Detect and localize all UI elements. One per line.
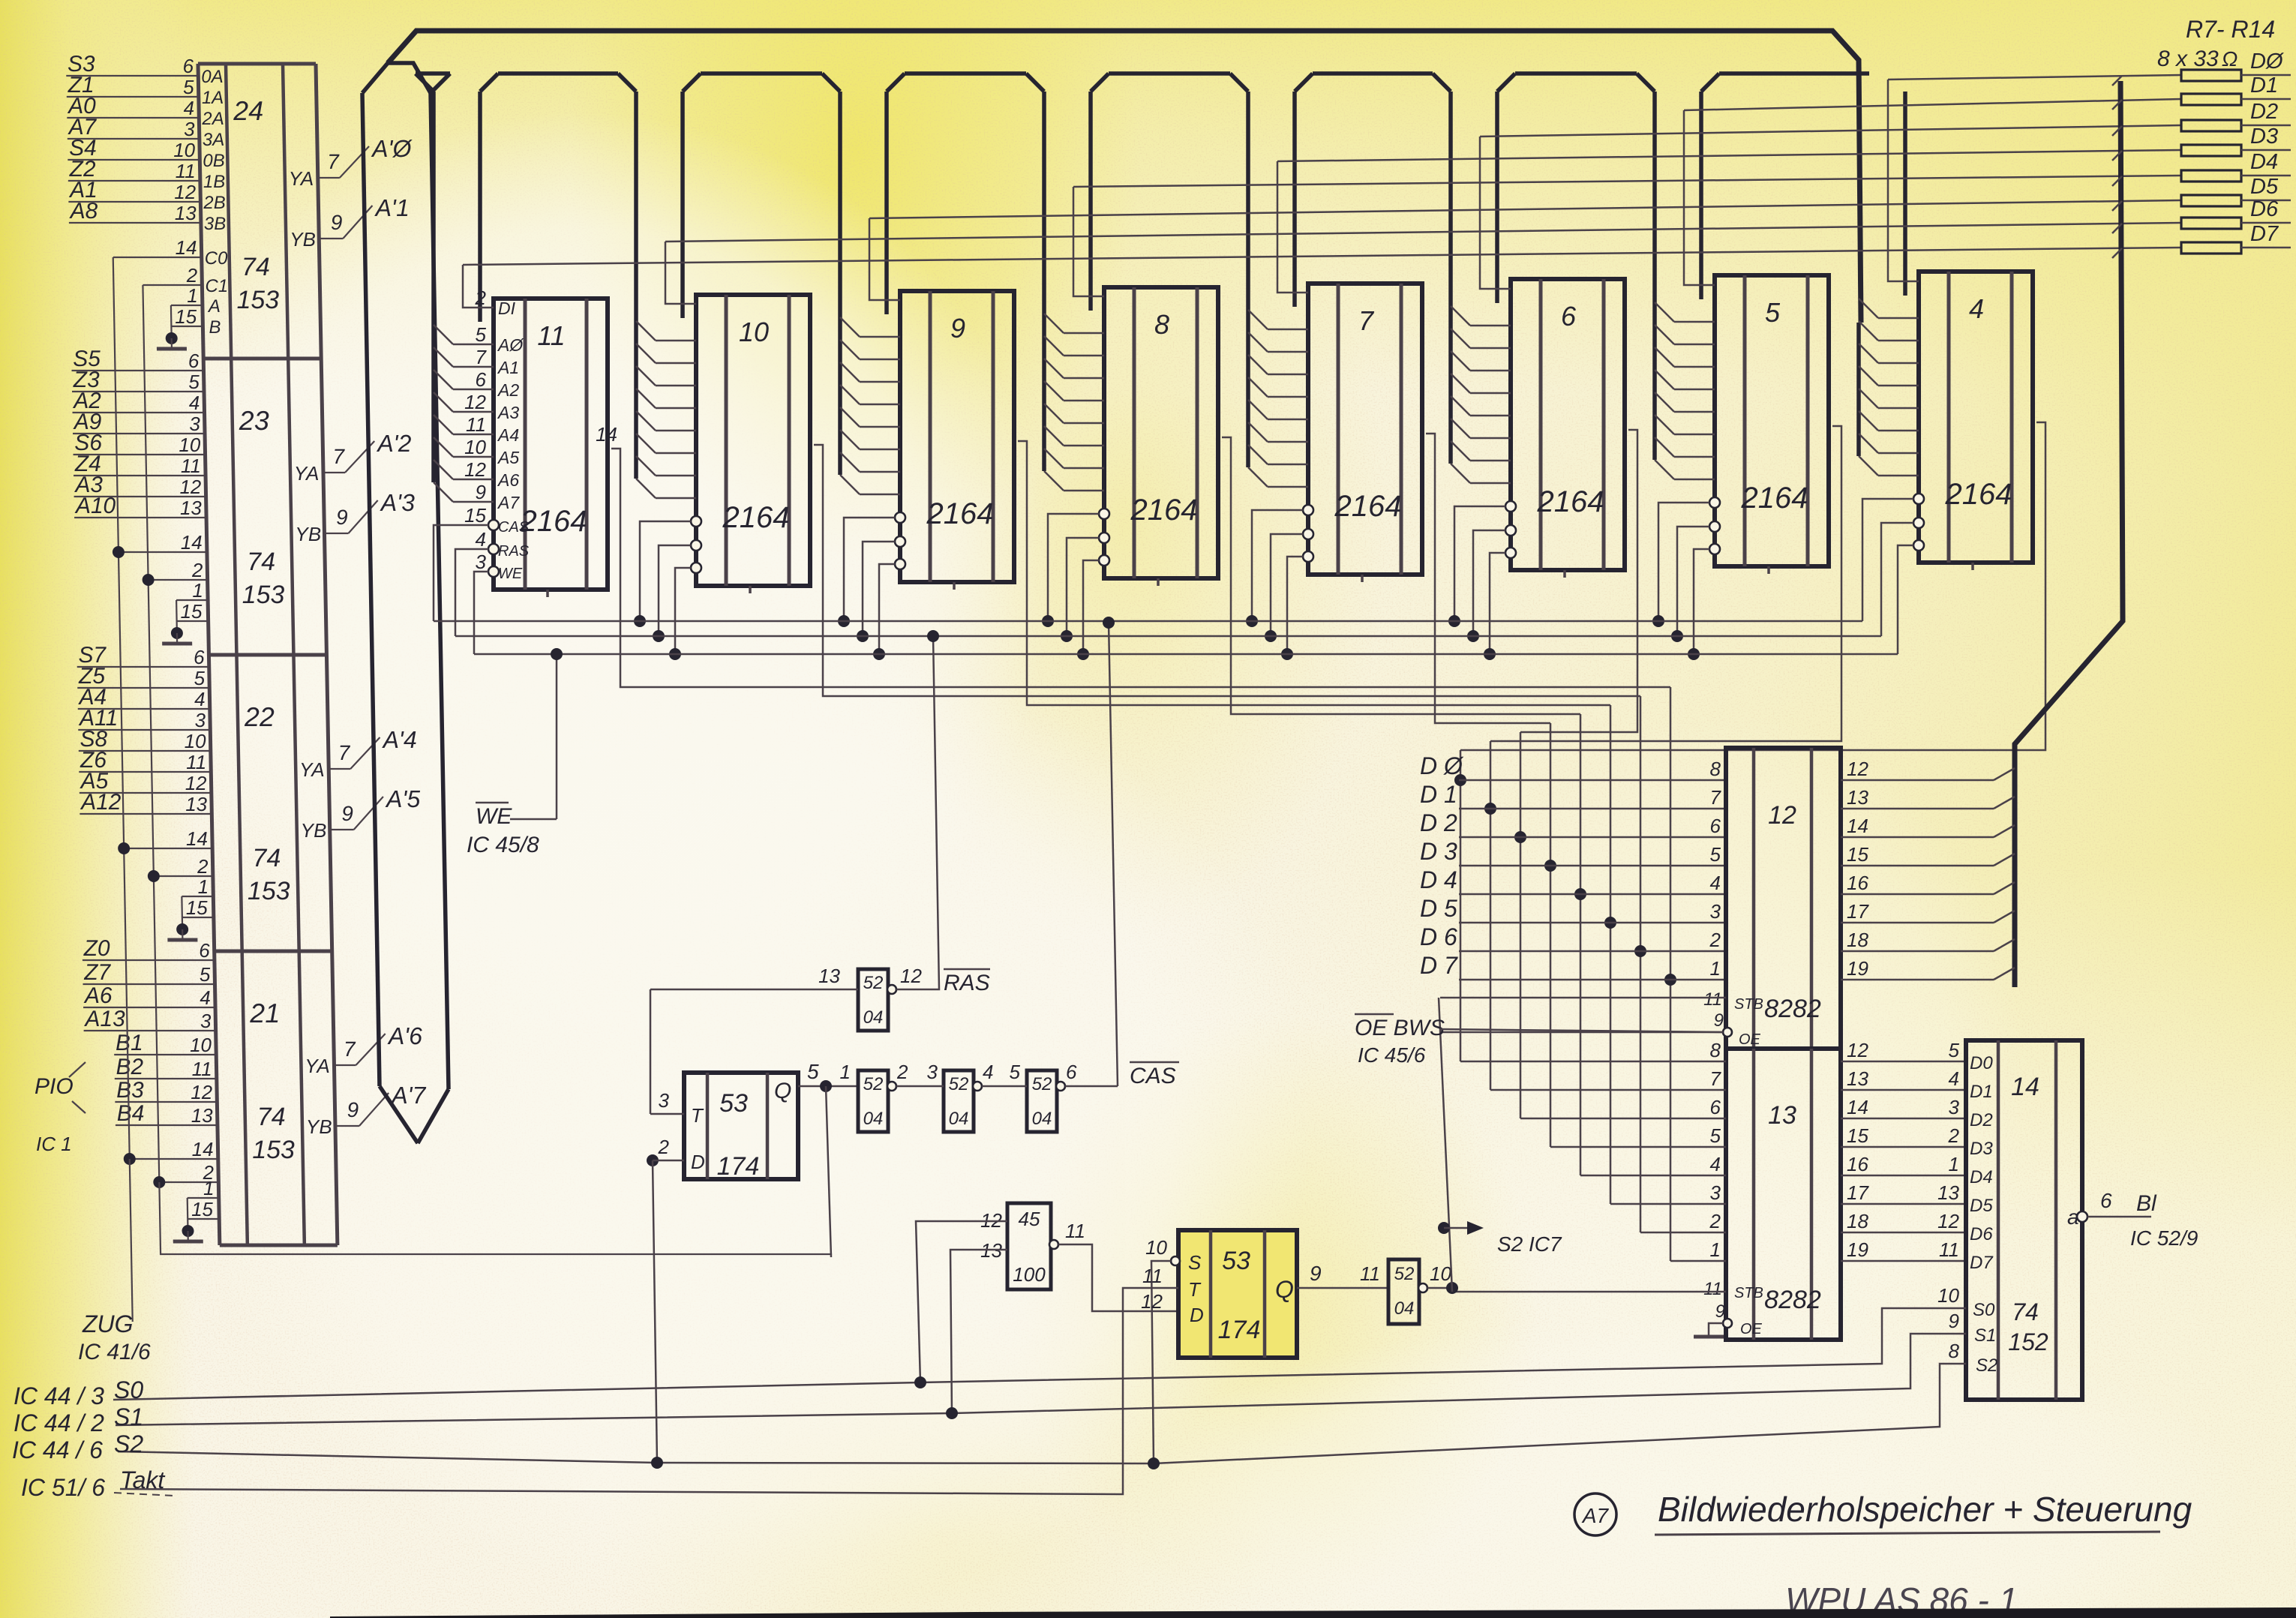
svg-text:6: 6 <box>1066 1061 1077 1083</box>
svg-text:13: 13 <box>1768 1101 1796 1130</box>
svg-text:11: 11 <box>181 455 202 477</box>
svg-text:12: 12 <box>1847 758 1868 780</box>
svg-text:12: 12 <box>464 458 486 481</box>
svg-text:4: 4 <box>983 1061 993 1083</box>
svg-text:12: 12 <box>1141 1290 1163 1313</box>
svg-text:14: 14 <box>191 1138 213 1160</box>
svg-text:5: 5 <box>1765 297 1781 328</box>
svg-text:153: 153 <box>248 877 291 905</box>
svg-text:153: 153 <box>242 581 285 609</box>
svg-text:2: 2 <box>185 264 198 287</box>
svg-text:13: 13 <box>818 965 840 987</box>
svg-text:9: 9 <box>950 313 965 344</box>
svg-text:74: 74 <box>2012 1298 2039 1325</box>
svg-text:STB: STB <box>1734 1285 1763 1301</box>
svg-text:6: 6 <box>182 55 194 77</box>
svg-text:A: A <box>207 296 221 317</box>
svg-text:1: 1 <box>1710 1238 1721 1261</box>
svg-text:2164: 2164 <box>1945 478 2012 511</box>
svg-text:53: 53 <box>1222 1247 1250 1275</box>
svg-text:11: 11 <box>1065 1220 1085 1242</box>
svg-text:4: 4 <box>1949 1067 1959 1090</box>
svg-text:4: 4 <box>183 97 194 119</box>
svg-text:12: 12 <box>1768 801 1796 830</box>
svg-text:6: 6 <box>1710 815 1721 837</box>
svg-text:Z7: Z7 <box>83 960 112 985</box>
svg-text:16: 16 <box>1847 1153 1868 1175</box>
svg-text:S0: S0 <box>114 1376 143 1403</box>
svg-text:15: 15 <box>180 600 203 623</box>
svg-text:7: 7 <box>332 445 346 468</box>
svg-text:11: 11 <box>175 160 196 182</box>
svg-text:04: 04 <box>949 1109 969 1129</box>
svg-text:D5: D5 <box>2250 175 2279 199</box>
svg-text:11: 11 <box>1703 989 1722 1010</box>
svg-text:7: 7 <box>327 150 341 173</box>
svg-text:1: 1 <box>187 284 198 307</box>
svg-text:153: 153 <box>236 286 280 314</box>
svg-text:52: 52 <box>949 1074 969 1094</box>
svg-text:D4: D4 <box>1970 1167 1993 1187</box>
svg-text:1: 1 <box>203 1177 215 1199</box>
svg-text:15: 15 <box>185 896 208 919</box>
svg-text:IC 52/9: IC 52/9 <box>2130 1226 2198 1250</box>
svg-text:10: 10 <box>173 139 196 161</box>
svg-text:B1: B1 <box>116 1031 143 1055</box>
svg-text:24: 24 <box>233 95 264 126</box>
svg-text:10: 10 <box>184 730 206 752</box>
svg-text:IC 1: IC 1 <box>36 1133 72 1155</box>
svg-text:S2 IC7: S2 IC7 <box>1497 1232 1562 1256</box>
svg-text:3B: 3B <box>204 214 227 234</box>
svg-text:2164: 2164 <box>1537 485 1604 518</box>
svg-text:Bl: Bl <box>2136 1191 2157 1216</box>
svg-text:A1: A1 <box>497 358 519 377</box>
svg-text:B4: B4 <box>116 1101 144 1126</box>
svg-text:A10: A10 <box>74 494 116 518</box>
svg-text:4: 4 <box>189 392 200 414</box>
svg-text:2164: 2164 <box>926 497 994 530</box>
svg-text:04: 04 <box>1032 1109 1052 1129</box>
svg-text:74: 74 <box>242 253 271 281</box>
svg-text:23: 23 <box>238 405 269 436</box>
svg-text:2164: 2164 <box>722 501 790 534</box>
svg-text:YA: YA <box>294 462 320 485</box>
svg-text:8282: 8282 <box>1764 995 1821 1023</box>
svg-text:A'Ø: A'Ø <box>371 135 413 162</box>
svg-text:11: 11 <box>537 320 565 351</box>
svg-text:13: 13 <box>185 793 208 815</box>
svg-text:52: 52 <box>1032 1074 1052 1094</box>
svg-text:D0: D0 <box>1970 1053 1993 1073</box>
svg-text:4: 4 <box>1710 1153 1721 1175</box>
svg-text:2: 2 <box>896 1061 908 1083</box>
svg-text:6: 6 <box>2100 1189 2112 1212</box>
svg-text:2164: 2164 <box>1334 490 1402 523</box>
svg-text:7: 7 <box>1710 786 1722 809</box>
svg-text:1A: 1A <box>202 88 224 108</box>
svg-text:2164: 2164 <box>1741 482 1808 515</box>
svg-text:04: 04 <box>863 1109 884 1129</box>
svg-text:13: 13 <box>174 202 197 224</box>
svg-text:IC 44 / 3: IC 44 / 3 <box>14 1382 104 1409</box>
svg-text:D5: D5 <box>1970 1196 1993 1216</box>
svg-text:AØ: AØ <box>497 335 524 355</box>
svg-text:IC 41/6: IC 41/6 <box>78 1340 151 1364</box>
svg-text:D7: D7 <box>2250 222 2279 246</box>
svg-text:7: 7 <box>1710 1067 1722 1090</box>
svg-text:A3: A3 <box>497 403 519 422</box>
svg-text:6: 6 <box>1561 301 1577 332</box>
svg-text:IC 44 / 2: IC 44 / 2 <box>14 1409 104 1436</box>
svg-text:A7: A7 <box>497 493 520 512</box>
svg-text:5: 5 <box>1710 843 1721 866</box>
svg-text:3: 3 <box>200 1010 212 1032</box>
svg-text:D 7: D 7 <box>1420 952 1458 979</box>
svg-text:4: 4 <box>194 688 206 710</box>
svg-text:5: 5 <box>476 323 487 346</box>
svg-text:D 6: D 6 <box>1420 923 1457 950</box>
svg-text:12: 12 <box>464 391 486 413</box>
svg-text:15: 15 <box>175 305 197 328</box>
svg-text:PIO: PIO <box>35 1074 74 1099</box>
svg-text:8: 8 <box>1710 758 1721 780</box>
svg-text:2: 2 <box>1709 1210 1721 1232</box>
svg-text:16: 16 <box>1847 872 1868 894</box>
svg-text:A6: A6 <box>497 470 519 490</box>
svg-text:11: 11 <box>1360 1262 1380 1285</box>
svg-text:D Ø: D Ø <box>1420 752 1464 779</box>
svg-text:12: 12 <box>185 772 207 794</box>
svg-text:5: 5 <box>194 667 206 689</box>
svg-text:D 1: D 1 <box>1420 781 1457 808</box>
svg-text:OE: OE <box>1739 1031 1761 1048</box>
svg-text:17: 17 <box>1847 1181 1869 1204</box>
svg-text:8282: 8282 <box>1764 1286 1821 1314</box>
svg-text:1: 1 <box>1949 1153 1959 1175</box>
svg-text:3: 3 <box>927 1061 938 1083</box>
svg-text:12: 12 <box>900 965 922 987</box>
svg-text:1: 1 <box>192 579 203 602</box>
svg-text:4: 4 <box>476 528 486 551</box>
svg-text:B3: B3 <box>116 1078 145 1103</box>
svg-text:18: 18 <box>1847 929 1868 951</box>
svg-text:10: 10 <box>179 434 201 456</box>
svg-text:74: 74 <box>247 548 276 576</box>
svg-text:53: 53 <box>719 1089 748 1118</box>
svg-text:C0: C0 <box>205 248 229 269</box>
svg-text:STB: STB <box>1734 996 1763 1013</box>
svg-text:Q: Q <box>1275 1276 1294 1303</box>
svg-text:IC 45/6: IC 45/6 <box>1358 1043 1426 1067</box>
svg-text:2A: 2A <box>201 109 224 129</box>
svg-text:10: 10 <box>1937 1284 1959 1307</box>
svg-text:A'5: A'5 <box>385 785 421 812</box>
svg-text:13: 13 <box>191 1104 214 1127</box>
svg-text:3: 3 <box>1710 1181 1721 1204</box>
svg-text:13: 13 <box>180 497 203 519</box>
svg-text:YA: YA <box>305 1055 330 1077</box>
svg-text:18: 18 <box>1847 1210 1868 1232</box>
svg-text:100: 100 <box>1013 1263 1046 1286</box>
svg-text:9: 9 <box>1714 1010 1724 1031</box>
svg-text:RAS: RAS <box>944 971 990 995</box>
svg-text:D6: D6 <box>2250 197 2279 221</box>
svg-text:S2: S2 <box>1976 1355 1997 1376</box>
svg-text:D 5: D 5 <box>1420 895 1457 922</box>
svg-text:5: 5 <box>183 76 195 98</box>
svg-text:52: 52 <box>863 973 884 993</box>
svg-text:6: 6 <box>476 368 487 391</box>
svg-text:12: 12 <box>174 181 197 203</box>
svg-text:1: 1 <box>197 875 209 898</box>
svg-text:174: 174 <box>717 1152 760 1181</box>
svg-text:D2: D2 <box>2250 100 2278 124</box>
svg-text:10: 10 <box>1145 1236 1167 1259</box>
svg-text:5: 5 <box>200 963 212 986</box>
svg-text:A6: A6 <box>83 983 113 1008</box>
svg-text:D4: D4 <box>2250 150 2278 174</box>
svg-text:9: 9 <box>336 506 348 529</box>
svg-text:10: 10 <box>464 436 486 458</box>
svg-text:A4: A4 <box>497 425 519 445</box>
svg-text:04: 04 <box>1394 1298 1415 1319</box>
svg-text:21: 21 <box>249 998 281 1028</box>
svg-text:6: 6 <box>194 646 206 668</box>
svg-text:OE BWS: OE BWS <box>1355 1016 1445 1040</box>
svg-text:A'7: A'7 <box>390 1082 427 1109</box>
svg-text:D: D <box>691 1151 705 1173</box>
svg-text:S: S <box>1188 1251 1202 1274</box>
svg-text:10: 10 <box>739 317 769 347</box>
svg-text:D6: D6 <box>1970 1224 1993 1244</box>
svg-text:14: 14 <box>186 827 208 850</box>
svg-text:5: 5 <box>188 371 200 393</box>
svg-text:YA: YA <box>299 758 325 781</box>
svg-text:RAS: RAS <box>498 543 530 560</box>
svg-text:S1: S1 <box>1974 1325 1996 1346</box>
svg-text:A7: A7 <box>1581 1504 1610 1527</box>
svg-text:11: 11 <box>466 413 486 436</box>
svg-text:8 x 33: 8 x 33 <box>2157 47 2219 71</box>
svg-text:14: 14 <box>180 531 202 554</box>
svg-text:4: 4 <box>200 986 211 1009</box>
svg-text:1: 1 <box>840 1061 851 1083</box>
svg-text:3: 3 <box>184 118 196 140</box>
svg-text:DØ: DØ <box>2250 50 2284 74</box>
svg-text:174: 174 <box>1218 1316 1261 1344</box>
svg-text:153: 153 <box>252 1136 296 1164</box>
svg-text:9: 9 <box>476 481 486 503</box>
svg-text:CAS: CAS <box>498 519 530 536</box>
svg-text:2: 2 <box>475 287 487 309</box>
svg-text:IC 51/ 6: IC 51/ 6 <box>21 1474 105 1501</box>
svg-text:9: 9 <box>1715 1301 1725 1322</box>
svg-text:2: 2 <box>658 1136 670 1158</box>
svg-text:7: 7 <box>344 1037 357 1061</box>
svg-text:7: 7 <box>476 346 488 368</box>
svg-text:DI: DI <box>498 299 516 318</box>
svg-text:3A: 3A <box>203 130 225 150</box>
svg-text:IC 45/8: IC 45/8 <box>467 833 539 857</box>
svg-text:12: 12 <box>1937 1210 1959 1232</box>
svg-text:11: 11 <box>186 751 207 773</box>
svg-text:YB: YB <box>306 1115 332 1138</box>
svg-text:52: 52 <box>863 1074 884 1094</box>
svg-text:A5: A5 <box>497 448 519 467</box>
svg-text:10: 10 <box>190 1034 212 1056</box>
svg-text:A'4: A'4 <box>381 726 417 753</box>
svg-text:A8: A8 <box>68 199 98 224</box>
svg-text:2: 2 <box>1709 929 1721 951</box>
svg-text:19: 19 <box>1847 1238 1868 1261</box>
svg-text:8: 8 <box>1949 1340 1960 1362</box>
svg-text:A13: A13 <box>83 1007 125 1031</box>
svg-text:19: 19 <box>1847 957 1868 980</box>
svg-text:9: 9 <box>347 1098 359 1121</box>
svg-text:Q: Q <box>774 1079 791 1103</box>
svg-text:D 4: D 4 <box>1420 866 1457 893</box>
svg-text:5: 5 <box>807 1060 819 1083</box>
svg-text:6: 6 <box>199 939 211 962</box>
svg-text:YB: YB <box>290 228 316 251</box>
svg-text:9: 9 <box>341 802 353 825</box>
svg-text:0A: 0A <box>201 67 224 87</box>
svg-text:6: 6 <box>1710 1096 1721 1118</box>
svg-text:11: 11 <box>1142 1265 1163 1287</box>
svg-text:IC 44 / 6: IC 44 / 6 <box>12 1436 103 1463</box>
svg-text:C1: C1 <box>205 276 228 296</box>
svg-text:A2: A2 <box>497 380 519 400</box>
svg-text:12: 12 <box>179 476 202 498</box>
svg-text:D3: D3 <box>2250 125 2278 149</box>
svg-text:7: 7 <box>338 741 352 764</box>
svg-text:52: 52 <box>1394 1264 1415 1284</box>
svg-text:9: 9 <box>1949 1310 1959 1332</box>
svg-text:3: 3 <box>659 1089 670 1112</box>
svg-text:YB: YB <box>300 819 326 842</box>
svg-text:D1: D1 <box>1970 1082 1993 1102</box>
svg-text:4: 4 <box>1710 872 1721 894</box>
svg-text:15: 15 <box>1847 843 1868 866</box>
svg-text:9: 9 <box>331 211 343 234</box>
svg-text:2164: 2164 <box>520 505 587 538</box>
svg-text:17: 17 <box>1847 900 1869 923</box>
svg-text:14: 14 <box>175 236 197 259</box>
svg-text:YA: YA <box>289 167 314 190</box>
svg-text:D: D <box>1190 1304 1204 1326</box>
svg-text:3: 3 <box>476 551 487 573</box>
svg-text:12: 12 <box>191 1081 213 1103</box>
svg-text:15: 15 <box>464 504 486 527</box>
svg-text:1B: 1B <box>203 172 226 192</box>
svg-text:8: 8 <box>1154 309 1169 340</box>
svg-text:14: 14 <box>1847 815 1868 837</box>
svg-text:8: 8 <box>1710 1039 1721 1061</box>
svg-text:WE: WE <box>498 566 523 582</box>
svg-text:5: 5 <box>1710 1124 1721 1147</box>
svg-text:13: 13 <box>1847 1067 1868 1090</box>
svg-text:12: 12 <box>1847 1039 1868 1061</box>
svg-text:2: 2 <box>191 559 204 581</box>
svg-text:A'3: A'3 <box>379 489 415 516</box>
svg-text:S2: S2 <box>114 1430 143 1457</box>
svg-text:2: 2 <box>197 855 209 878</box>
svg-text:3: 3 <box>189 413 201 435</box>
svg-text:15: 15 <box>1847 1124 1868 1147</box>
svg-text:S0: S0 <box>1973 1300 1995 1320</box>
svg-text:3: 3 <box>1949 1096 1960 1118</box>
svg-text:A'1: A'1 <box>374 194 410 221</box>
svg-text:D2: D2 <box>1970 1110 1993 1130</box>
svg-text:04: 04 <box>863 1007 884 1028</box>
svg-text:D3: D3 <box>1970 1139 1993 1159</box>
svg-text:A'2: A'2 <box>376 430 412 457</box>
svg-text:74: 74 <box>257 1103 286 1131</box>
svg-text:S1: S1 <box>114 1403 143 1430</box>
svg-text:5: 5 <box>1949 1039 1960 1061</box>
svg-text:Bildwiederholspeicher + Steuer: Bildwiederholspeicher + Steuerung <box>1658 1490 2192 1529</box>
svg-text:A'6: A'6 <box>386 1022 422 1049</box>
svg-text:2: 2 <box>1948 1124 1960 1147</box>
svg-text:3: 3 <box>1710 900 1721 923</box>
svg-text:B: B <box>209 317 221 338</box>
svg-text:13: 13 <box>1847 786 1868 809</box>
svg-text:2B: 2B <box>203 193 226 213</box>
svg-text:D1: D1 <box>2250 74 2278 98</box>
svg-text:9: 9 <box>1310 1262 1322 1285</box>
svg-text:14: 14 <box>1847 1096 1868 1118</box>
svg-text:2164: 2164 <box>1130 494 1198 527</box>
svg-text:45: 45 <box>1019 1208 1040 1230</box>
svg-text:6: 6 <box>188 350 200 372</box>
svg-text:4: 4 <box>1969 293 1984 324</box>
svg-text:D 2: D 2 <box>1420 809 1457 836</box>
svg-text:22: 22 <box>244 701 275 732</box>
svg-text:1: 1 <box>1710 957 1721 980</box>
svg-text:14: 14 <box>2011 1073 2039 1101</box>
svg-text:15: 15 <box>191 1198 214 1220</box>
svg-text:Ω: Ω <box>2222 47 2237 71</box>
svg-text:YB: YB <box>295 523 321 545</box>
svg-text:CAS: CAS <box>1130 1064 1176 1088</box>
svg-text:D7: D7 <box>1970 1253 1994 1273</box>
svg-text:B2: B2 <box>116 1055 144 1079</box>
svg-text:5: 5 <box>1010 1061 1021 1083</box>
svg-text:13: 13 <box>1937 1181 1959 1204</box>
svg-text:74: 74 <box>252 844 281 872</box>
svg-text:10: 10 <box>1430 1262 1451 1285</box>
svg-text:R7- R14: R7- R14 <box>2186 16 2275 43</box>
svg-text:152: 152 <box>2008 1328 2048 1355</box>
svg-text:A12: A12 <box>80 790 122 815</box>
svg-text:OE: OE <box>1740 1321 1763 1337</box>
svg-text:D 3: D 3 <box>1420 838 1457 865</box>
svg-text:3: 3 <box>194 709 206 731</box>
svg-text:0B: 0B <box>203 151 225 171</box>
svg-text:WE: WE <box>476 804 512 829</box>
svg-text:14: 14 <box>596 423 617 446</box>
svg-text:11: 11 <box>191 1058 212 1080</box>
svg-text:T: T <box>1188 1278 1202 1301</box>
svg-text:Takt: Takt <box>120 1466 165 1493</box>
svg-text:11: 11 <box>1703 1279 1722 1299</box>
svg-text:7: 7 <box>1358 305 1375 336</box>
svg-text:Z0: Z0 <box>83 936 110 961</box>
svg-text:ZUG: ZUG <box>82 1310 134 1337</box>
svg-text:T: T <box>691 1104 704 1127</box>
svg-text:11: 11 <box>1939 1238 1959 1261</box>
